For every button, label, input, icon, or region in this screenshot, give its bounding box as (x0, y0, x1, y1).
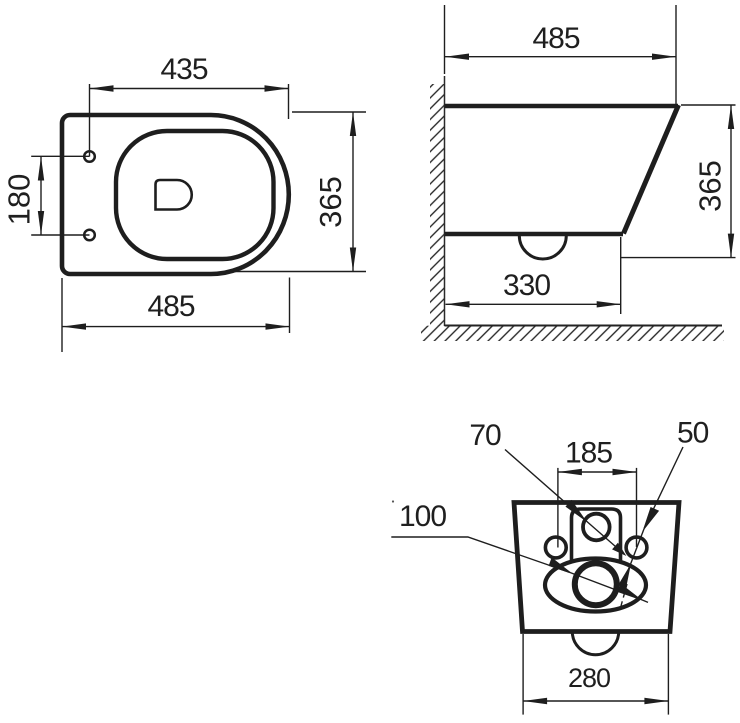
svg-text:100: 100 (399, 500, 446, 533)
svg-text:50: 50 (677, 417, 709, 450)
svg-text:70: 70 (469, 419, 501, 452)
svg-text:485: 485 (532, 22, 579, 55)
svg-text:330: 330 (503, 269, 550, 302)
svg-text:365: 365 (313, 176, 348, 228)
svg-text:185: 185 (565, 437, 612, 470)
svg-text:435: 435 (160, 53, 207, 86)
svg-text:365: 365 (693, 160, 728, 212)
svg-text:280: 280 (568, 663, 610, 693)
svg-text:485: 485 (147, 290, 194, 323)
svg-text:180: 180 (2, 174, 37, 226)
